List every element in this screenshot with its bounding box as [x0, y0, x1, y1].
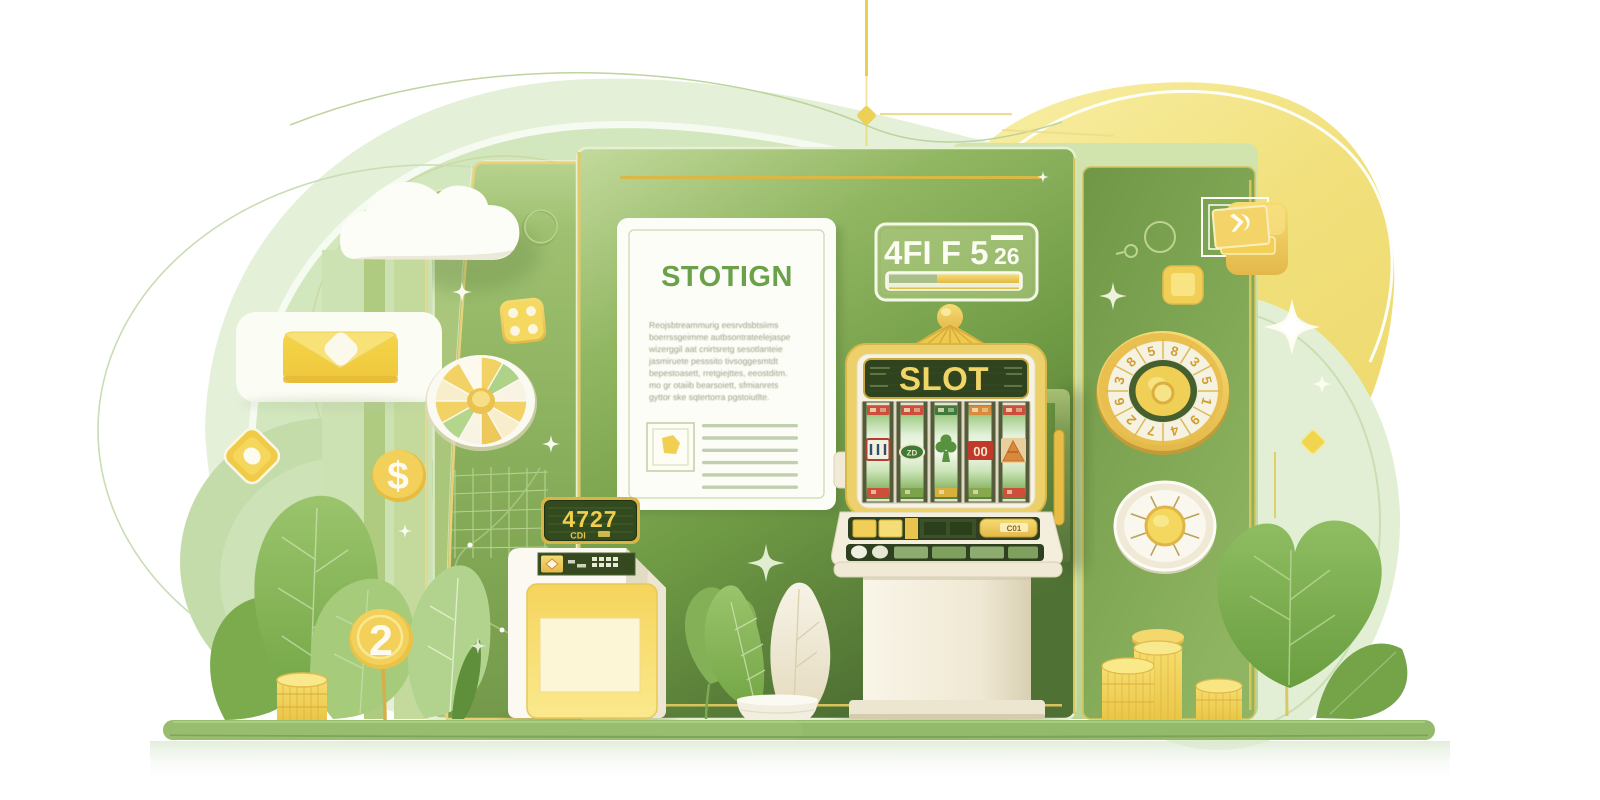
- svg-text:ZD: ZD: [907, 449, 918, 458]
- svg-text:4727: 4727: [562, 506, 617, 532]
- svg-text:2: 2: [369, 617, 393, 665]
- svg-text:$: $: [387, 455, 409, 498]
- svg-text:gyttor ske sqtertorra pgstoiut: gyttor ske sqtertorra pgstoiutlte.: [649, 392, 769, 402]
- svg-text:boerrssgeimme autbsontrateelej: boerrssgeimme autbsontrateelejaspe: [649, 332, 791, 342]
- svg-text:STOTIGN: STOTIGN: [661, 261, 793, 293]
- svg-text:jasmiruete pesssito tivsoggesm: jasmiruete pesssito tivsoggesmtdt: [648, 356, 779, 366]
- svg-text:4FI F 5: 4FI F 5: [884, 234, 989, 271]
- svg-text:mo gr otaiib bearsoiett, sfmi: mo gr otaiib bearsoiett, sfmianrets: [649, 380, 778, 390]
- svg-text:wizerggil aat cnirtsretg sesot: wizerggil aat cnirtsretg sesotlanteie: [648, 344, 783, 354]
- svg-text:SLOT: SLOT: [899, 360, 989, 397]
- svg-text:C01: C01: [1007, 524, 1022, 533]
- svg-text:bepestoasett, rretgiejttes, ee: bepestoasett, rretgiejttes, eeostditm.: [649, 368, 788, 378]
- svg-text:Reojsbtreammurig eesrvdsbtsiim: Reojsbtreammurig eesrvdsbtsiims: [649, 320, 778, 330]
- svg-text:26: 26: [994, 243, 1020, 269]
- svg-text:CDI: CDI: [570, 531, 586, 541]
- svg-text:00: 00: [973, 444, 987, 459]
